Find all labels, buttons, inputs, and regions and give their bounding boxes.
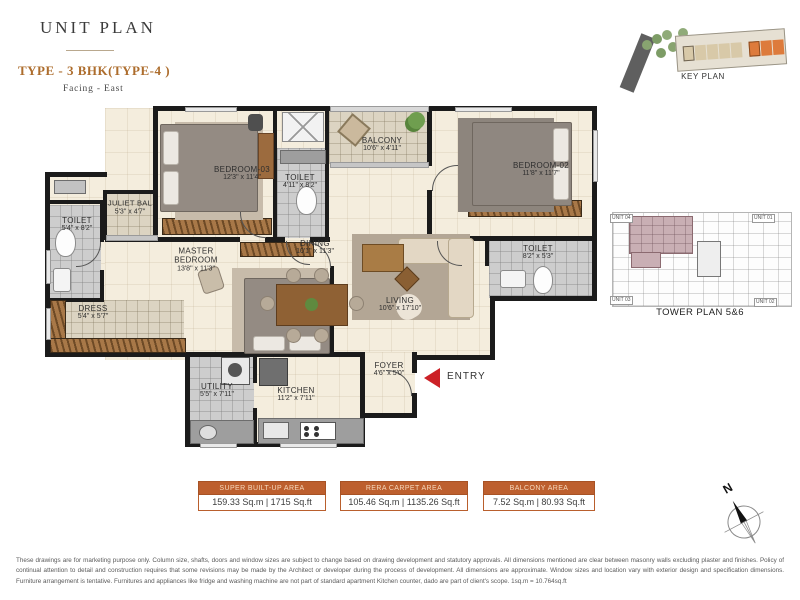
toilet-top-vanity xyxy=(280,150,326,164)
balcony-top-rail xyxy=(330,106,429,112)
kitchen-fridge xyxy=(259,358,288,386)
disclaimer-text: These drawings are for marketing purpose… xyxy=(16,556,784,587)
window-dress xyxy=(46,308,51,340)
kitchen-stove xyxy=(300,422,336,440)
room-label-toilet-left: TOILET 5'4" x 8'2" xyxy=(62,216,93,234)
window-toilet-left xyxy=(46,250,51,284)
key-plan-site xyxy=(675,28,787,72)
title-underline xyxy=(66,50,114,51)
toilet-left-basin xyxy=(53,268,71,292)
wall-toilet-left-right-a xyxy=(100,202,104,242)
wall-foyer-bottom xyxy=(360,413,417,418)
key-plan-building xyxy=(683,46,695,62)
window-utility xyxy=(200,443,237,448)
wall-toilet-right-left xyxy=(485,240,489,266)
wall-foyer-right-lower xyxy=(412,393,417,418)
wall-utility-kitchen-a xyxy=(253,355,257,383)
kitchen-sink xyxy=(263,422,289,439)
dining-chair xyxy=(260,296,275,311)
dining-chair xyxy=(286,328,301,343)
dining-chair xyxy=(349,296,364,311)
room-label-bedroom3: BEDROOM-03 12'3" x 11'4" xyxy=(214,165,270,183)
page-title: UNIT PLAN xyxy=(40,18,156,38)
room-label-master: MASTER BEDROOM 13'8" x 11'3" xyxy=(165,246,227,273)
room-label-kitchen: KITCHEN 11'2" x 7'11" xyxy=(277,386,314,404)
balcony-railing xyxy=(330,162,429,168)
area-box-rera-carpet: RERA CARPET AREA 105.46 Sq.m | 1135.26 S… xyxy=(340,481,468,511)
unit-plan-page: UNIT PLAN TYPE - 3 BHK(TYPE-4 ) Facing -… xyxy=(0,0,800,600)
room-label-utility: UTILITY 5'5" x 7'11" xyxy=(200,382,234,400)
dining-plant xyxy=(305,298,318,311)
key-plan-caption: KEY PLAN xyxy=(618,72,788,81)
tower-unit-01-label: UNIT 01 xyxy=(752,214,775,223)
facing-label: Facing - East xyxy=(63,84,124,94)
wall-leftwing-top xyxy=(45,172,107,177)
window-kitchen xyxy=(280,443,337,448)
toilet-right-basin xyxy=(500,270,526,288)
wall-rightwing-bottom xyxy=(490,296,597,301)
tower-plan: UNIT 04 UNIT 01 UNIT 03 UNIT 02 TOWER PL… xyxy=(606,208,794,320)
tower-highlighted-unit-ext xyxy=(631,252,661,268)
wall-toilet-balcony xyxy=(325,106,329,240)
area-box-title: SUPER BUILT-UP AREA xyxy=(198,481,326,495)
tower-unit-03-label: UNIT 03 xyxy=(610,296,633,305)
area-box-title: BALCONY AREA xyxy=(483,481,595,495)
balcony-plant xyxy=(408,112,425,129)
dress-wardrobe-bottom xyxy=(50,338,186,353)
window-bedroom2-right xyxy=(593,130,598,182)
compass: N xyxy=(712,478,776,548)
wall-bedroom3-left xyxy=(153,106,158,240)
room-label-balcony: BALCONY 10'6" x 4'11" xyxy=(362,136,402,154)
bedroom3-chair xyxy=(248,114,263,131)
compass-icon: N xyxy=(712,478,776,548)
room-label-dining: DINING 10'1" x 11'3" xyxy=(296,239,334,257)
utility-counter xyxy=(190,420,254,444)
living-coffee-table xyxy=(362,244,404,272)
compass-north-label: N xyxy=(721,480,736,496)
tower-plan-drawing xyxy=(612,212,792,307)
key-plan: KEY PLAN xyxy=(618,10,788,82)
area-box-super-builtup: SUPER BUILT-UP AREA 159.33 Sq.m | 1715 S… xyxy=(198,481,326,511)
entry-label: ENTRY xyxy=(447,371,486,382)
room-label-bedroom2: BEDROOM-02 11'8" x 11'7" xyxy=(513,161,569,179)
room-label-foyer: FOYER 4'6" x 5'0" xyxy=(374,361,405,379)
tower-unit-04-label: UNIT 04 xyxy=(610,214,633,223)
wall-bedroom2-bottom-b xyxy=(462,236,597,241)
area-box-value: 105.46 Sq.m | 1135.26 Sq.ft xyxy=(340,495,468,511)
room-label-dress: DRESS 5'4" x 5'7" xyxy=(78,304,109,322)
area-box-value: 159.33 Sq.m | 1715 Sq.ft xyxy=(198,495,326,511)
area-box-title: RERA CARPET AREA xyxy=(340,481,468,495)
room-label-living: LIVING 10'6" x 17'10" xyxy=(379,296,421,314)
wall-toilet-left-top xyxy=(45,200,103,204)
key-plan-highlight-building xyxy=(748,41,760,57)
wall-bedroom2-left-upper xyxy=(427,106,432,166)
room-label-toilet-top: TOILET 4'11" x 8'2" xyxy=(283,173,317,191)
wall-juliet-top xyxy=(103,190,158,194)
dining-chair xyxy=(286,268,301,283)
room-label-toilet-right: TOILET 8'2" x 5'3" xyxy=(523,244,554,262)
entry-arrow-icon xyxy=(424,368,440,388)
tower-unit-02-label: UNIT 02 xyxy=(754,298,777,307)
wall-bedroom2-left-lower xyxy=(427,190,432,240)
wall-living-right xyxy=(490,298,495,360)
area-box-value: 7.52 Sq.m | 80.93 Sq.ft xyxy=(483,495,595,511)
window-bedroom3 xyxy=(185,107,237,112)
dining-chair xyxy=(314,268,329,283)
key-plan-green xyxy=(642,40,652,50)
room-label-juliet: JULIET BAL 5'3" x 4'7" xyxy=(108,199,152,216)
unit-type-heading: TYPE - 3 BHK(TYPE-4 ) xyxy=(18,63,170,79)
dining-chair xyxy=(314,328,329,343)
shaft-duct xyxy=(282,112,324,142)
utility-washing-machine xyxy=(221,357,250,385)
tower-corridor xyxy=(697,241,721,277)
juliet-railing xyxy=(106,235,158,241)
dining-table xyxy=(276,284,348,326)
wall-living-bottom xyxy=(412,355,495,360)
tower-highlighted-unit xyxy=(629,216,693,254)
window-bedroom2-top xyxy=(455,107,512,112)
left-wing-shelf xyxy=(54,180,86,194)
area-box-balcony: BALCONY AREA 7.52 Sq.m | 80.93 Sq.ft xyxy=(483,481,595,511)
tower-plan-caption: TOWER PLAN 5&6 xyxy=(606,307,794,318)
toilet-right-wc xyxy=(533,266,553,294)
